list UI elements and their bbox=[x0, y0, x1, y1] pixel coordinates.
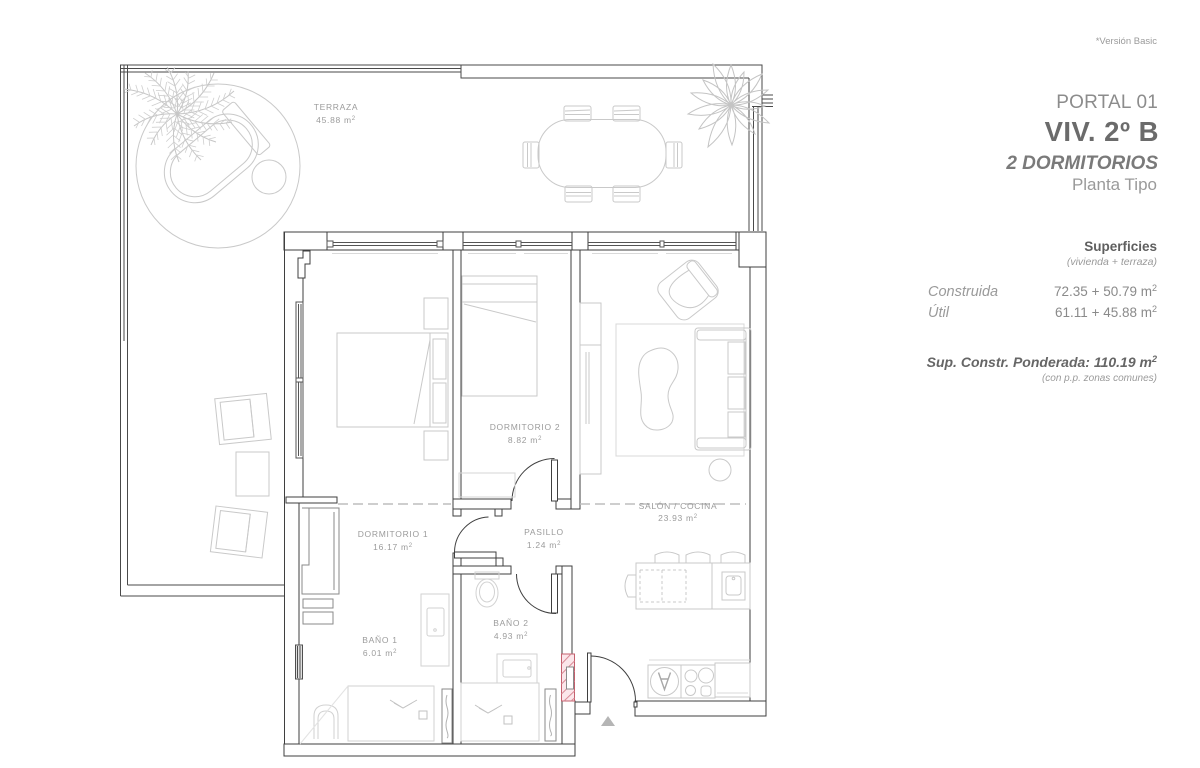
svg-text:PASILLO: PASILLO bbox=[524, 527, 564, 537]
svg-text:1.24 m2: 1.24 m2 bbox=[527, 540, 561, 550]
svg-text:61.11 + 45.88 m2: 61.11 + 45.88 m2 bbox=[1055, 304, 1157, 320]
svg-text:16.17 m2: 16.17 m2 bbox=[373, 542, 413, 552]
svg-text:BAÑO 1: BAÑO 1 bbox=[362, 635, 397, 645]
svg-text:VIV. 2º B: VIV. 2º B bbox=[1045, 116, 1159, 147]
svg-text:6.01 m2: 6.01 m2 bbox=[363, 648, 397, 658]
svg-text:TERRAZA: TERRAZA bbox=[314, 102, 359, 112]
svg-text:Construida: Construida bbox=[928, 284, 998, 300]
svg-text:72.35 + 50.79 m2: 72.35 + 50.79 m2 bbox=[1054, 283, 1157, 299]
svg-text:*Versión Basic: *Versión Basic bbox=[1096, 36, 1158, 47]
svg-text:DORMITORIO 1: DORMITORIO 1 bbox=[358, 529, 429, 539]
svg-text:23.93 m2: 23.93 m2 bbox=[658, 513, 698, 523]
svg-text:4.93 m2: 4.93 m2 bbox=[494, 631, 528, 641]
svg-text:DORMITORIO 2: DORMITORIO 2 bbox=[490, 422, 561, 432]
svg-text:SALÓN / COCINA: SALÓN / COCINA bbox=[639, 501, 718, 511]
svg-text:(con p.p. zonas comunes): (con p.p. zonas comunes) bbox=[1042, 373, 1157, 384]
svg-text:Sup. Constr. Ponderada: 110.19: Sup. Constr. Ponderada: 110.19 m2 bbox=[927, 354, 1157, 370]
svg-text:BAÑO 2: BAÑO 2 bbox=[493, 618, 528, 628]
svg-text:Planta Tipo: Planta Tipo bbox=[1072, 175, 1157, 194]
svg-text:8.82 m2: 8.82 m2 bbox=[508, 435, 542, 445]
svg-text:45.88 m2: 45.88 m2 bbox=[316, 115, 356, 125]
svg-text:2 DORMITORIOS: 2 DORMITORIOS bbox=[1005, 153, 1158, 174]
svg-text:Superficies: Superficies bbox=[1084, 239, 1157, 254]
svg-text:Útil: Útil bbox=[928, 304, 950, 321]
svg-text:(vivienda + terraza): (vivienda + terraza) bbox=[1067, 256, 1157, 268]
svg-text:PORTAL 01: PORTAL 01 bbox=[1056, 92, 1158, 113]
